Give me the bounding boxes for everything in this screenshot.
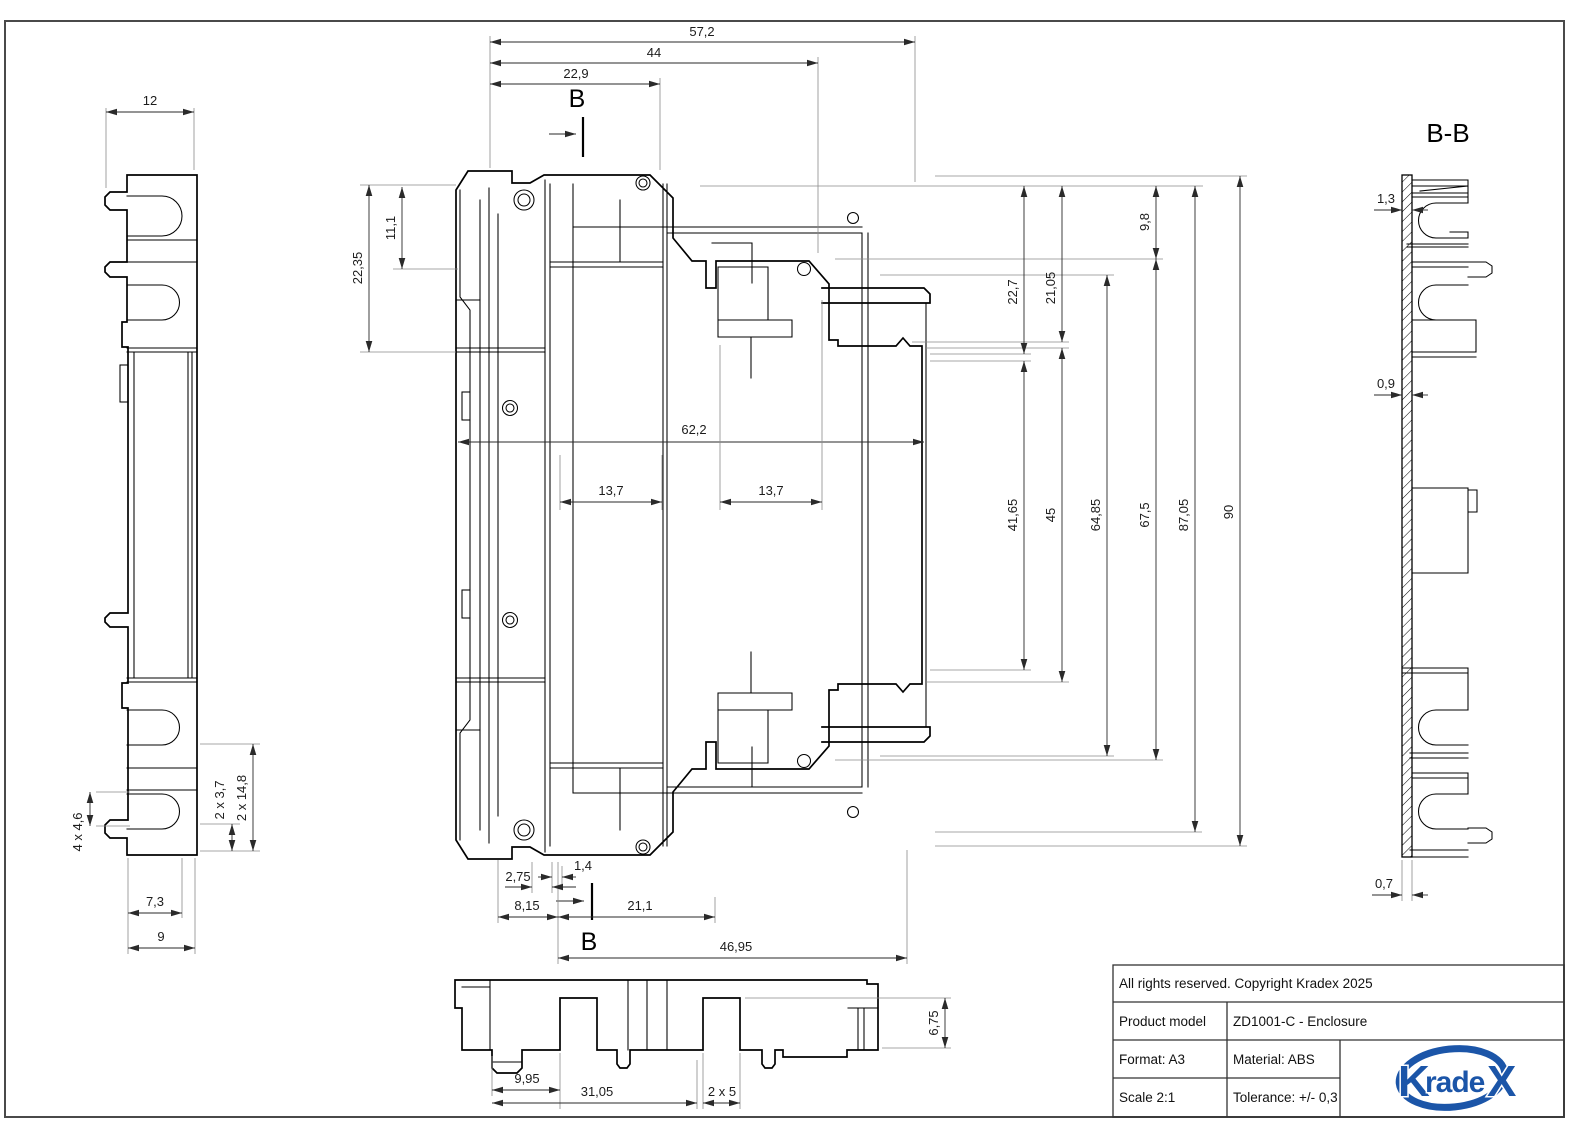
dim-label: 67,5	[1137, 502, 1152, 527]
dim-label: 6,75	[926, 1010, 941, 1035]
dim-label: 62,2	[681, 422, 706, 437]
dim-label: 0,9	[1377, 376, 1395, 391]
dim-label: 2 x 3,7	[212, 780, 227, 819]
dim-label: 22,9	[563, 66, 588, 81]
dim-label: 45	[1043, 508, 1058, 522]
section-hatched-wall	[1402, 175, 1412, 857]
dim-label: 87,05	[1176, 499, 1191, 532]
dim-label: 22,35	[350, 252, 365, 285]
dim-label: 8,15	[514, 898, 539, 913]
scale-text: Scale 2:1	[1119, 1090, 1175, 1105]
dim-label: 12	[143, 93, 157, 108]
logo-mid-text: rade	[1425, 1066, 1485, 1099]
logo-letter-x: X	[1487, 1057, 1516, 1106]
dim-label: 90	[1221, 505, 1236, 519]
format-text: Format: A3	[1119, 1052, 1185, 1067]
left-side-view	[105, 175, 197, 855]
dim-label: 57,2	[689, 24, 714, 39]
drawing-canvas: 12 4 x 4,6 2 x 3,7 2 x 14,8 7,3 9	[0, 0, 1588, 1123]
dim-label: 4 x 4,6	[70, 812, 85, 851]
product-model-label: Product model	[1119, 1014, 1206, 1029]
dim-label: 13,7	[598, 483, 623, 498]
dim-label: 2 x 14,8	[234, 775, 249, 821]
sheet-border	[5, 21, 1564, 1117]
section-label-bottom: B	[581, 928, 598, 956]
dim-label: 7,3	[146, 894, 164, 909]
dim-label: 9	[157, 929, 164, 944]
dim-label: 44	[647, 45, 661, 60]
engineering-drawing-page: 12 4 x 4,6 2 x 3,7 2 x 14,8 7,3 9	[0, 0, 1588, 1123]
dim-label: 13,7	[758, 483, 783, 498]
dim-label: 11,1	[383, 216, 398, 240]
dim-label: 2,75	[505, 869, 530, 884]
dim-label: 46,95	[720, 939, 753, 954]
dim-label: 21,05	[1043, 272, 1058, 305]
dim-label: 2 x 5	[708, 1084, 736, 1099]
material-text: Material: ABS	[1233, 1052, 1315, 1067]
main-view-dimensions: 57,2 44 22,9 22,35 11,1 62,2 13,7 13,7 2…	[350, 24, 1247, 964]
kradex-logo: K rade X	[1396, 1044, 1516, 1113]
copyright-text: All rights reserved. Copyright Kradex 20…	[1119, 976, 1373, 991]
dim-label: 21,1	[627, 898, 652, 913]
section-b-b-view: B-B 1,3 0,9 0,7	[1372, 118, 1492, 901]
dim-label: 9,8	[1137, 213, 1152, 231]
screw-boss-holes	[503, 176, 859, 854]
tolerance-text: Tolerance: +/- 0,3	[1233, 1090, 1338, 1105]
bottom-view: 9,95 31,05 2 x 5 6,75	[455, 980, 951, 1109]
left-view-dimensions: 12 4 x 4,6 2 x 3,7 2 x 14,8 7,3 9	[70, 93, 260, 954]
dim-label: 22,7	[1005, 279, 1020, 304]
dim-label: 64,85	[1088, 499, 1103, 532]
dim-label: 31,05	[581, 1084, 614, 1099]
dim-label: 0,7	[1375, 876, 1393, 891]
section-view-title: B-B	[1426, 118, 1469, 148]
dim-label: 41,65	[1005, 499, 1020, 532]
section-label-top: B	[569, 85, 586, 113]
dim-label: 1,4	[574, 858, 592, 873]
product-model-value: ZD1001-C - Enclosure	[1233, 1014, 1367, 1029]
dim-label: 9,95	[514, 1071, 539, 1086]
title-block: All rights reserved. Copyright Kradex 20…	[1113, 965, 1564, 1117]
dim-label: 1,3	[1377, 191, 1395, 206]
main-plan-view	[456, 171, 930, 859]
